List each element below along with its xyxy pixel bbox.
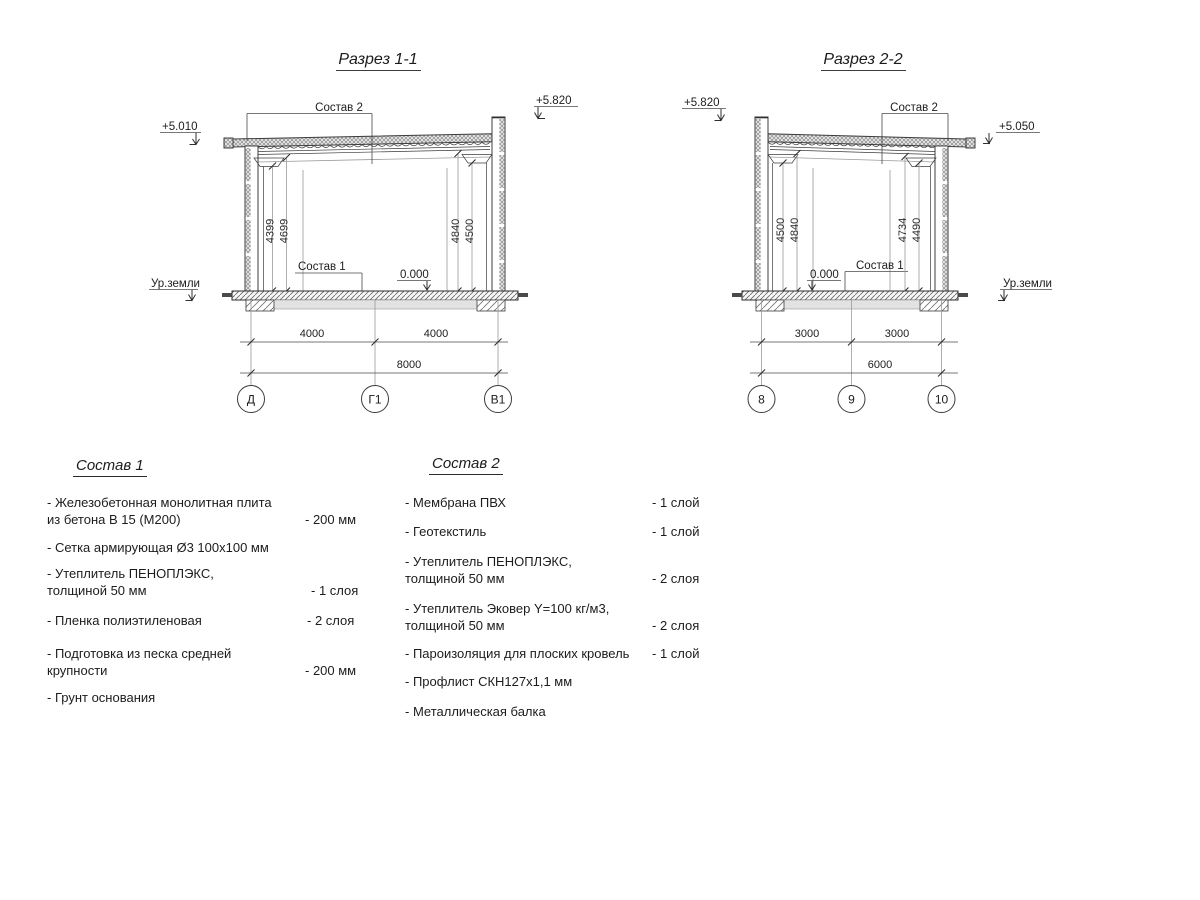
vdim-value: 4500 [775, 218, 787, 242]
legend-item-text: - Подготовка из песка средней крупности [47, 645, 305, 679]
elevation-mark-parapet: +5.820 [534, 95, 578, 119]
zero-level-value: 0.000 [400, 269, 429, 281]
sand-layer [756, 300, 948, 309]
sections-drawing: Разрез 1-1 [0, 0, 1200, 450]
span-dim: 4000 [300, 328, 324, 340]
sand-layer [246, 300, 505, 309]
section-2-2: Разрез 2-2 [682, 51, 1052, 413]
legend-item-text: - Пароизоляция для плоских кровель [405, 645, 652, 662]
elevation-mark-eave: +5.010 [160, 121, 201, 145]
footing [246, 300, 274, 311]
floor-slab [732, 291, 968, 311]
section-title: Разрез 2-2 [823, 51, 902, 68]
legend-item-text: - Металлическая балка [405, 703, 652, 720]
section-1-1: Разрез 1-1 [149, 51, 578, 413]
legend-item-text: - Утеплитель Эковер Y=100 кг/м3, толщино… [405, 600, 652, 634]
footing [477, 300, 505, 311]
left-wall-parapet [755, 117, 768, 293]
vdim-value: 4699 [279, 219, 291, 243]
span-dim: 3000 [885, 328, 909, 340]
legend-item-text: - Профлист СКН127х1,1 мм [405, 673, 652, 690]
elevation-value: +5.010 [162, 121, 198, 133]
vdim-value: 4500 [464, 219, 476, 243]
legend-sostav-1: Состав 1 - Железобетонная монолитная пли… [47, 455, 377, 725]
legend-item-qty: - 1 слой [652, 494, 700, 511]
footing [756, 300, 784, 311]
legend-item-text: - Мембрана ПВХ [405, 494, 652, 511]
axis-label: 8 [758, 393, 765, 407]
legend-title: Состав 2 [429, 455, 503, 475]
axis-bubbles: Д Г1 В1 [238, 386, 512, 413]
legend-item-text: - Грунт основания [47, 689, 305, 706]
legend-item-qty: - 200 мм [305, 662, 356, 679]
span-dim: 3000 [795, 328, 819, 340]
vdim-value: 4399 [265, 219, 277, 243]
blueprint-page: Разрез 1-1 [0, 0, 1200, 900]
legend-item-qty: - 1 слой [652, 645, 700, 662]
legend-item-qty: - 2 слоя [652, 570, 699, 587]
left-wall [245, 146, 258, 293]
vertical-dimensions: 4500 4840 4734 4490 [775, 150, 923, 295]
axis-label: 10 [935, 393, 949, 407]
ceiling-beams [258, 147, 490, 163]
elevation-mark-parapet: +5.820 [682, 97, 726, 121]
axis-label: 9 [848, 393, 855, 407]
total-dim: 6000 [868, 359, 892, 371]
roof-callout-label: Состав 2 [315, 102, 363, 114]
elevation-value: +5.820 [684, 97, 720, 109]
eave-end-block [224, 138, 233, 148]
elevation-value: +5.050 [999, 121, 1035, 133]
legend-item-text: - Утеплитель ПЕНОПЛЭКС, толщиной 50 мм [47, 565, 311, 599]
span-dim: 4000 [424, 328, 448, 340]
legend-item-text: - Пленка полиэтиленовая [47, 612, 307, 629]
legend-item-qty: - 200 мм [305, 511, 356, 528]
floor-callout-label: Состав 1 [298, 261, 346, 273]
eave-end-block [966, 138, 975, 148]
roof-callout-label: Состав 2 [890, 102, 938, 114]
legend-item-qty: - 2 слоя [307, 612, 354, 629]
legend-item-text: - Железобетонная монолитная плита из бет… [47, 494, 305, 528]
vdim-value: 4490 [911, 218, 923, 242]
zero-level-mark: 0.000 [807, 269, 841, 290]
right-wall [935, 146, 948, 293]
ground-label: Ур.земли [151, 278, 200, 290]
vdim-value: 4734 [897, 218, 909, 242]
legend-item-qty: - 2 слоя [652, 617, 699, 634]
ground-label: Ур.земли [1003, 278, 1052, 290]
elevation-value: +5.820 [536, 95, 572, 107]
vdim-value: 4840 [789, 218, 801, 242]
legend-item-text: - Геотекстиль [405, 523, 652, 540]
horizontal-dimensions: 3000 3000 6000 [750, 300, 958, 385]
zero-level-mark: 0.000 [397, 269, 431, 290]
axis-bubbles: 8 9 10 [748, 386, 955, 413]
floor-callout-label: Состав 1 [856, 260, 904, 272]
vdim-value: 4840 [450, 219, 462, 243]
elevation-mark-eave: +5.050 [983, 121, 1040, 144]
right-wall-parapet [492, 117, 505, 293]
ground-level-mark: Ур.земли [998, 278, 1052, 301]
footing [920, 300, 948, 311]
zero-level-value: 0.000 [810, 269, 839, 281]
horizontal-dimensions: 4000 4000 8000 [240, 300, 508, 385]
ground-level-mark: Ур.земли [149, 278, 200, 301]
legend-title: Состав 1 [73, 457, 147, 477]
legend-item-qty: - 1 слоя [311, 582, 358, 599]
section-title: Разрез 1-1 [338, 51, 417, 68]
axis-label: Г1 [368, 393, 381, 407]
roof-callout: Состав 2 [247, 102, 372, 164]
legend-item-text: - Утеплитель ПЕНОПЛЭКС, толщиной 50 мм [405, 553, 652, 587]
roof-slab [224, 134, 492, 148]
axis-label: Д [247, 393, 255, 407]
total-dim: 8000 [397, 359, 421, 371]
legend-item-qty: - 1 слой [652, 523, 700, 540]
axis-label: В1 [491, 393, 506, 407]
legend-sostav-2: Состав 2 - Мембрана ПВХ- 1 слой - Геотек… [405, 450, 715, 740]
legend-item-text: - Сетка армирующая Ø3 100х100 мм [47, 539, 305, 556]
